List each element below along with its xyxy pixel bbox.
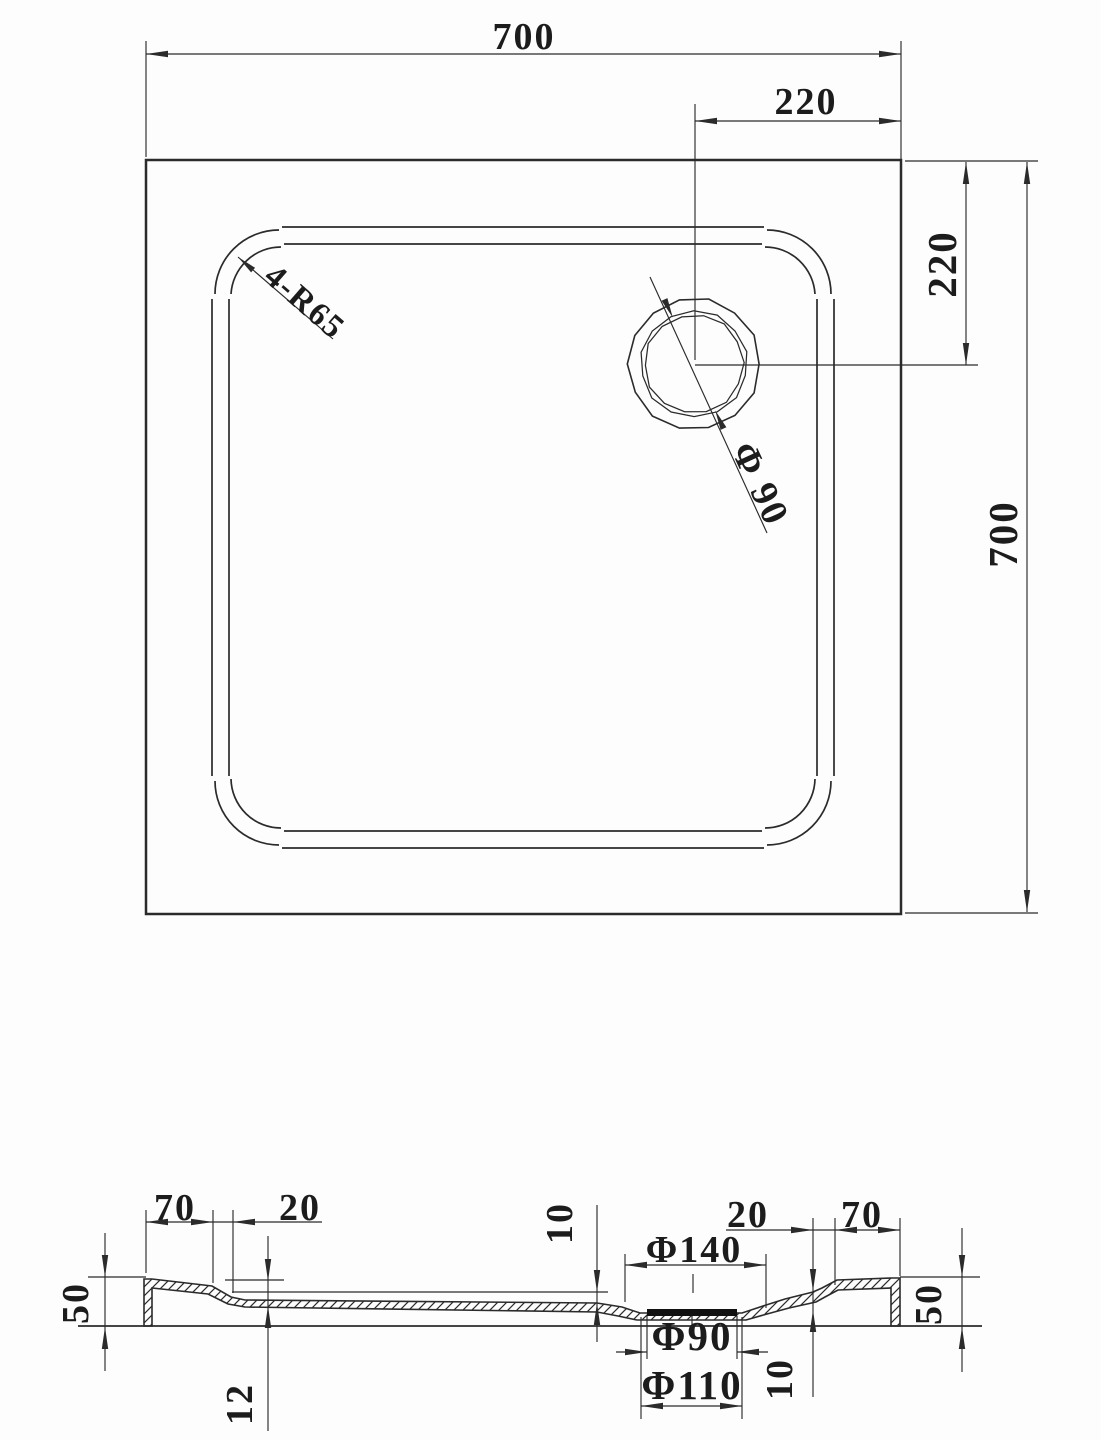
dim-arrow (594, 1270, 600, 1292)
drain-rings (627, 299, 759, 428)
dim-drain-hole-label: Φ90 (652, 1313, 733, 1359)
dim-arrow (625, 1349, 647, 1355)
dim-left-drop-label: 10 (539, 1202, 581, 1244)
dim-floor-thickness-label: 12 (219, 1383, 261, 1425)
drain-ring (641, 311, 747, 417)
top-view: Φ 90 4-R65 700 220 220 700 (146, 16, 1038, 914)
dim-left-step-label: 20 (279, 1187, 321, 1229)
dim-right-drop-label: 10 (759, 1358, 801, 1400)
dim-arrow (963, 343, 969, 365)
dim-arrow (102, 1255, 108, 1277)
dim-arrow (625, 1262, 647, 1268)
dim-arrow (810, 1269, 816, 1291)
dim-right-rim-label: 70 (841, 1194, 883, 1236)
dim-right-height-label: 50 (908, 1283, 950, 1325)
dim-arrow (744, 1262, 766, 1268)
tray-outer-edge (146, 160, 901, 914)
dim-arrow (102, 1327, 108, 1349)
drain-ring (627, 299, 759, 428)
dim-arrow (810, 1310, 816, 1332)
dim-arrow (265, 1259, 271, 1281)
dim-left-height-label: 50 (55, 1282, 97, 1324)
dim-arrow (265, 1306, 271, 1328)
corner-radius-label: 4-R65 (257, 258, 352, 347)
dim-arrow (737, 1349, 759, 1355)
dim-arrow (879, 51, 901, 57)
dim-arrow (146, 51, 168, 57)
tray-section-slab (144, 1278, 900, 1326)
section-view: 70 20 50 12 10 Φ140 20 70 (55, 1187, 982, 1431)
dim-drain-offset-x-label: 220 (775, 81, 838, 123)
dim-height-label: 700 (980, 500, 1026, 568)
dim-right-step-label: 20 (727, 1194, 769, 1236)
dim-flange-diameter-label: Φ110 (641, 1362, 742, 1408)
dim-arrow (963, 162, 969, 184)
drawing-canvas: Φ 90 4-R65 700 220 220 700 (0, 0, 1101, 1440)
dim-arrow (791, 1227, 813, 1233)
dim-drain-offset-y-label: 220 (919, 230, 965, 298)
dim-arrow (879, 118, 901, 124)
corner-radius-arrow (238, 257, 255, 272)
dim-arrow (959, 1255, 965, 1277)
dim-arrow (695, 118, 717, 124)
dim-top-width-label: 700 (493, 16, 556, 58)
drain-diameter-label: Φ 90 (722, 436, 797, 533)
dim-arrow (1024, 162, 1030, 184)
dim-arrow (1024, 890, 1030, 912)
dim-arrow (959, 1327, 965, 1349)
dim-arrow (233, 1219, 255, 1225)
shower-tray-technical-drawing: Φ 90 4-R65 700 220 220 700 (0, 0, 1101, 1440)
dim-left-rim-label: 70 (154, 1187, 196, 1229)
